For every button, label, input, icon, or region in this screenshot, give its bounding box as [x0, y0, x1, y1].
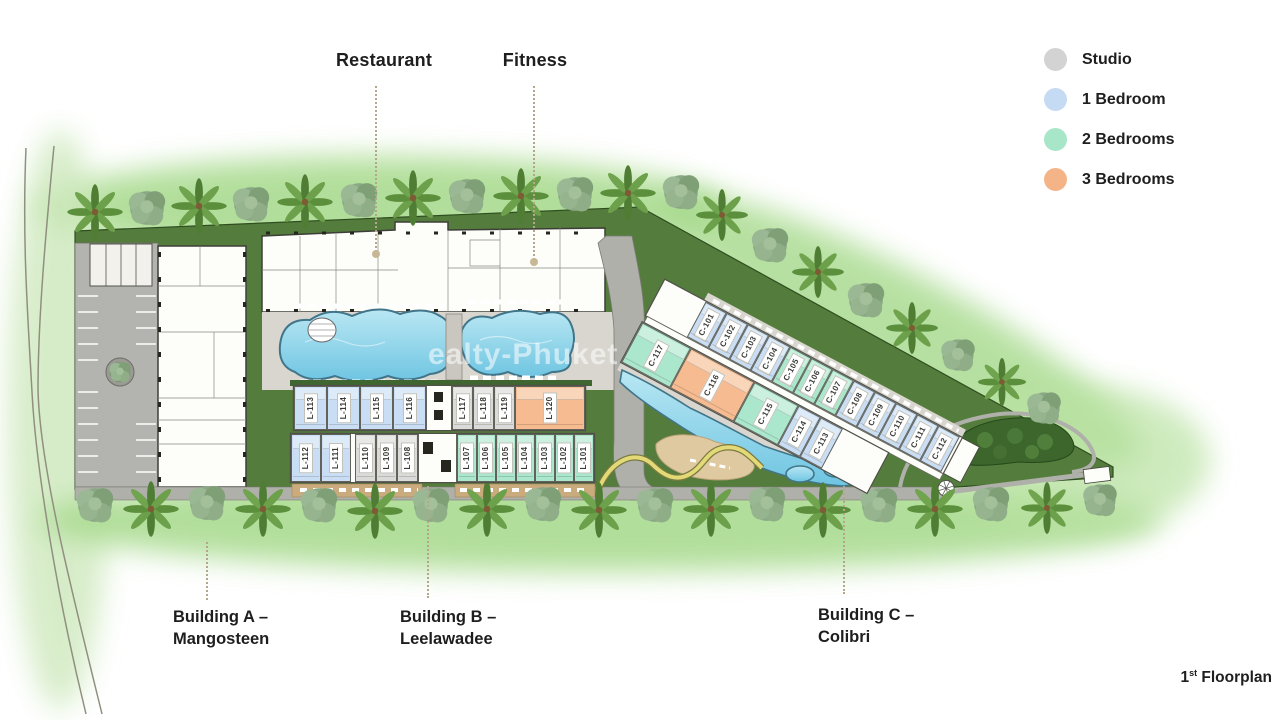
- unit-L-110: L-110: [355, 434, 376, 482]
- building-c-leader-line: [843, 486, 845, 594]
- clubhouse-footprint: [262, 222, 605, 312]
- restaurant-leader-dot: [372, 250, 380, 258]
- unit-L-118: L-118: [473, 386, 494, 430]
- fitness-leader-line: [533, 86, 535, 260]
- unit-L-102: L-102: [555, 434, 575, 482]
- building-c-label-line2: Colibri: [818, 628, 870, 646]
- legend-item-3-bedrooms: 3 Bedrooms: [1044, 168, 1174, 191]
- building-a-label-line2: Mangosteen: [173, 630, 269, 648]
- legend-item-2-bedrooms: 2 Bedrooms: [1044, 128, 1174, 151]
- fitness-leader-dot: [530, 258, 538, 266]
- unit-L-115: L-115: [360, 386, 393, 430]
- legend-item-studio: Studio: [1044, 48, 1174, 71]
- unit-L-114: L-114: [327, 386, 360, 430]
- unit-L-106: L-106: [477, 434, 497, 482]
- three-bedrooms-swatch-icon: [1044, 168, 1067, 191]
- floorplan-page: L-113L-114L-115L-116L-117L-118L-119L-120…: [0, 0, 1280, 720]
- unit-label: L-101: [577, 443, 591, 474]
- unit-label: L-118: [477, 393, 491, 423]
- unit-label: L-105: [499, 443, 513, 474]
- restaurant-label: Restaurant: [336, 50, 432, 71]
- one-bedroom-swatch-icon: [1044, 88, 1067, 111]
- unit-label: L-112: [299, 443, 313, 473]
- unit-L-116: L-116: [393, 386, 426, 430]
- unit-label: L-116: [403, 393, 417, 423]
- legend: Studio 1 Bedroom 2 Bedrooms 3 Bedrooms: [1044, 48, 1174, 191]
- unit-label: L-108: [401, 443, 415, 474]
- fitness-label: Fitness: [503, 50, 567, 71]
- unit-L-108: L-108: [397, 434, 418, 482]
- floor-ordinal: st: [1189, 668, 1197, 678]
- restaurant-leader-line: [375, 86, 377, 252]
- unit-label: C-115: [753, 396, 780, 430]
- watermark: ealty-Phuket: [428, 338, 618, 372]
- unit-L-103: L-103: [535, 434, 555, 482]
- two-bedrooms-swatch-icon: [1044, 128, 1067, 151]
- building-b-lobby: [426, 386, 452, 430]
- building-b-leader-line: [427, 486, 429, 598]
- unit-L-113: L-113: [294, 386, 327, 430]
- unit-label: L-106: [479, 443, 493, 474]
- unit-label: L-115: [370, 393, 384, 423]
- building-c-label-line1: Building C –: [818, 606, 914, 624]
- unit-L-111: L-111: [321, 434, 351, 482]
- unit-L-112: L-112: [291, 434, 321, 482]
- unit-L-107: L-107: [457, 434, 477, 482]
- unit-L-104: L-104: [516, 434, 536, 482]
- legend-item-1-bedroom: 1 Bedroom: [1044, 88, 1174, 111]
- pool-pergola: [308, 318, 336, 342]
- building-b-label: Building B – Leelawadee: [400, 606, 496, 651]
- unit-label: L-111: [329, 443, 343, 473]
- unit-label: L-113: [304, 393, 318, 423]
- unit-label: C-116: [699, 368, 726, 402]
- building-a-label-line1: Building A –: [173, 608, 268, 626]
- unit-label: L-120: [543, 393, 557, 424]
- unit-label: L-109: [380, 443, 394, 474]
- studio-swatch-icon: [1044, 48, 1067, 71]
- building-b-south-row: L-112L-111L-110L-109L-108L-107L-106L-105…: [291, 434, 594, 482]
- unit-L-109: L-109: [376, 434, 397, 482]
- building-b-label-line2: Leelawadee: [400, 630, 493, 648]
- legend-label: Studio: [1082, 51, 1132, 69]
- unit-label: L-107: [460, 443, 474, 474]
- unit-label: L-102: [557, 443, 571, 474]
- building-b-label-line1: Building B –: [400, 608, 496, 626]
- floor-text: Floorplan: [1201, 669, 1272, 686]
- building-a-footprint: [158, 246, 246, 487]
- unit-L-105: L-105: [496, 434, 516, 482]
- unit-label: L-117: [456, 393, 470, 423]
- legend-label: 1 Bedroom: [1082, 91, 1166, 109]
- unit-L-119: L-119: [494, 386, 515, 430]
- building-a-leader-line: [206, 542, 208, 600]
- unit-label: L-104: [518, 443, 532, 474]
- floorplan-caption: 1st Floorplan: [1180, 668, 1272, 687]
- legend-label: 3 Bedrooms: [1082, 171, 1174, 189]
- unit-label: L-103: [538, 443, 552, 474]
- building-c-label: Building C – Colibri: [818, 604, 914, 649]
- unit-L-117: L-117: [452, 386, 473, 430]
- legend-label: 2 Bedrooms: [1082, 131, 1174, 149]
- unit-L-120: L-120: [515, 386, 585, 430]
- unit-label: L-119: [498, 393, 512, 423]
- building-b-core: [418, 434, 457, 482]
- unit-L-101: L-101: [574, 434, 594, 482]
- unit-label: C-117: [643, 338, 670, 372]
- unit-label: L-114: [337, 393, 351, 423]
- building-b-north-row: L-113L-114L-115L-116L-117L-118L-119L-120: [294, 386, 585, 430]
- unit-label: L-110: [359, 443, 373, 473]
- building-a-label: Building A – Mangosteen: [173, 606, 269, 651]
- floor-number: 1: [1180, 669, 1189, 686]
